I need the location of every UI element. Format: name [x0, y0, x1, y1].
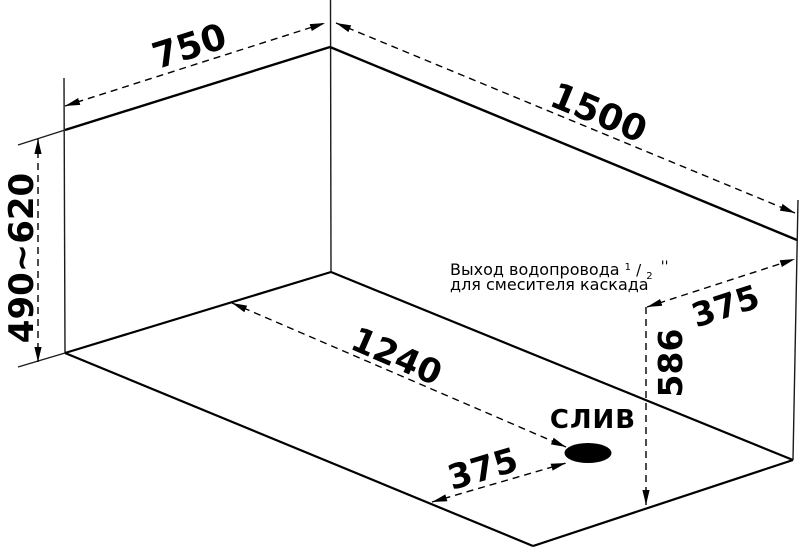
- outlet-size-numerator: 1: [625, 262, 631, 273]
- floor-front-left-edge: [65, 353, 533, 546]
- dim-label-outlet-offset: 375: [687, 277, 765, 335]
- outlet-note-line2: для смесителя каскада: [450, 275, 649, 294]
- drain-label: СЛИВ: [550, 405, 636, 435]
- floor-front-right-edge: [533, 460, 793, 546]
- dim-label-top-width: 750: [148, 16, 232, 78]
- dim-label-outlet-height: 586: [651, 329, 690, 398]
- left-edge: [64, 78, 65, 353]
- dim-label-floor-diagonal: 1240: [345, 320, 448, 395]
- inner-corner-edge: [331, 0, 332, 272]
- drawing-canvas: 750 1500 490~620 1240 375 375 586 СЛИВ В…: [0, 0, 800, 547]
- floor-back-left-edge: [65, 272, 331, 353]
- outlet-size-unit-icon: '': [661, 259, 669, 275]
- dim-label-drain-offset: 375: [443, 440, 522, 498]
- floor-back-left-extension: [18, 353, 65, 367]
- dim-label-top-length: 1500: [544, 75, 652, 151]
- top-left-rim-extension: [18, 130, 65, 145]
- drain-hole: [565, 443, 612, 463]
- bathtub-dimension-diagram: 750 1500 490~620 1240 375 375 586 СЛИВ В…: [0, 0, 800, 547]
- dim-label-left-height: 490~620: [2, 173, 42, 343]
